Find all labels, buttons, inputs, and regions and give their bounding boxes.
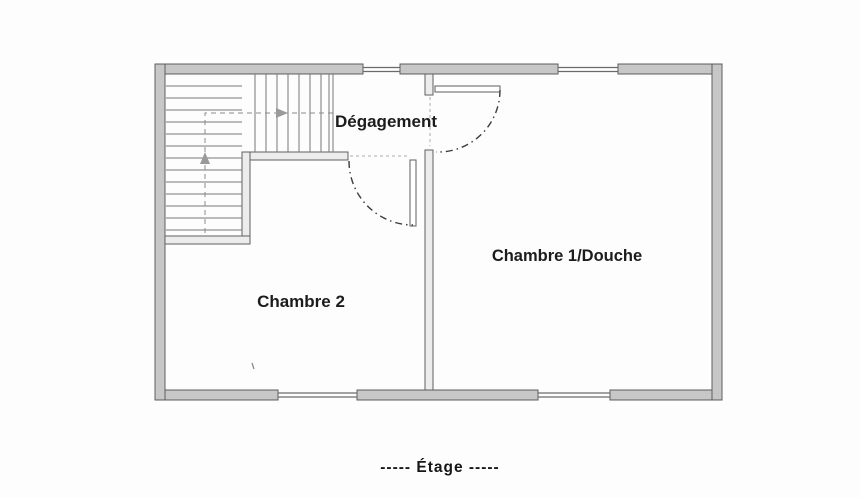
- room-label-chambre2: Chambre 2: [257, 292, 345, 311]
- stair-direction-path: [205, 113, 333, 233]
- window-top-1: [363, 68, 400, 72]
- door-chambre2-leaf: [410, 160, 416, 226]
- wall-left: [155, 64, 165, 400]
- wall-bottom-segment-3: [610, 390, 722, 400]
- floor-plan-drawing: Dégagement Chambre 1/Douche Chambre 2 --…: [0, 0, 860, 498]
- window-top-2: [558, 68, 618, 72]
- wall-stair-column-right: [242, 152, 250, 244]
- right-arrow-icon: [276, 108, 288, 118]
- wall-door1-stub: [425, 74, 433, 95]
- door-chambre1: [430, 86, 500, 152]
- floor-plan-page: Dégagement Chambre 1/Douche Chambre 2 --…: [0, 0, 860, 498]
- wall-top-segment-3: [618, 64, 722, 74]
- exterior-walls: [155, 64, 722, 400]
- window-bottom-1: [278, 393, 357, 397]
- door-chambre1-leaf: [435, 86, 500, 92]
- wall-top-segment-2: [400, 64, 558, 74]
- wall-bottom-segment-1: [155, 390, 278, 400]
- door-chambre2-swing-arc: [349, 161, 413, 225]
- wall-partition-chambre1-chambre2: [425, 150, 433, 390]
- wall-stair-column-bottom: [165, 236, 250, 244]
- wall-stair-run-bottom: [242, 152, 348, 160]
- wall-top-segment-1: [155, 64, 363, 74]
- door-chambre1-swing-arc: [436, 90, 500, 152]
- room-label-chambre1: Chambre 1/Douche: [492, 247, 642, 265]
- wall-right: [712, 64, 722, 400]
- room-label-degagement: Dégagement: [335, 112, 437, 131]
- wall-bottom-segment-2: [357, 390, 538, 400]
- window-bottom-2: [538, 393, 610, 397]
- door-chambre2: [349, 156, 416, 226]
- plan-caption-etage: ----- Étage -----: [380, 459, 499, 476]
- scan-speck: [252, 363, 254, 369]
